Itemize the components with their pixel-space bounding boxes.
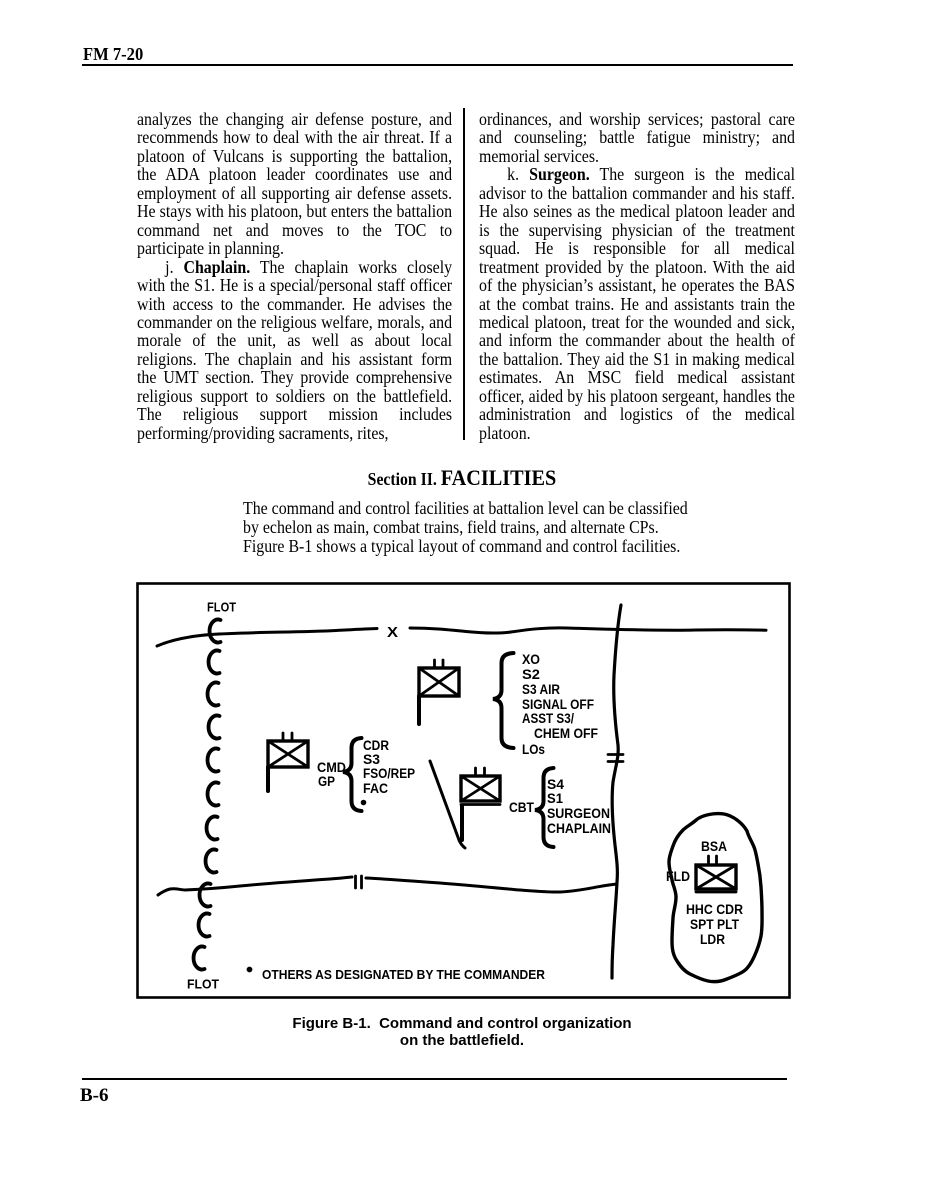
svg-text:S3: S3 [363,752,380,767]
svg-text:SPT PLT: SPT PLT [690,917,740,932]
svg-text:LOs: LOs [522,742,545,757]
svg-text:S3 AIR: S3 AIR [522,682,560,697]
svg-text:SIGNAL OFF: SIGNAL OFF [522,697,594,712]
svg-text:BSA: BSA [701,839,727,854]
svg-text:FLOT: FLOT [187,978,219,992]
svg-text:GP: GP [318,774,335,789]
svg-text:FLOT: FLOT [207,601,236,615]
svg-text:LDR: LDR [700,932,725,947]
svg-text:OTHERS AS DESIGNATED BY THE CO: OTHERS AS DESIGNATED BY THE COMMANDER [262,967,546,982]
svg-text:CHEM OFF: CHEM OFF [534,726,598,741]
svg-text:CDR: CDR [363,738,389,753]
svg-text:CBT: CBT [509,800,535,815]
svg-text:CMD: CMD [317,760,346,775]
svg-text:X: X [387,624,398,641]
svg-text:FLD: FLD [666,869,690,884]
svg-text:HHC CDR: HHC CDR [686,902,743,917]
svg-text:FSO/REP: FSO/REP [363,766,415,781]
svg-text:XO: XO [522,652,540,667]
svg-text:S4: S4 [547,777,565,792]
svg-text:CHAPLAIN: CHAPLAIN [547,821,611,836]
svg-text:ASST S3/: ASST S3/ [522,711,574,726]
svg-text:S2: S2 [522,667,540,682]
svg-text:SURGEON: SURGEON [547,806,610,821]
svg-text:FAC: FAC [363,781,388,796]
svg-text:S1: S1 [547,791,564,806]
